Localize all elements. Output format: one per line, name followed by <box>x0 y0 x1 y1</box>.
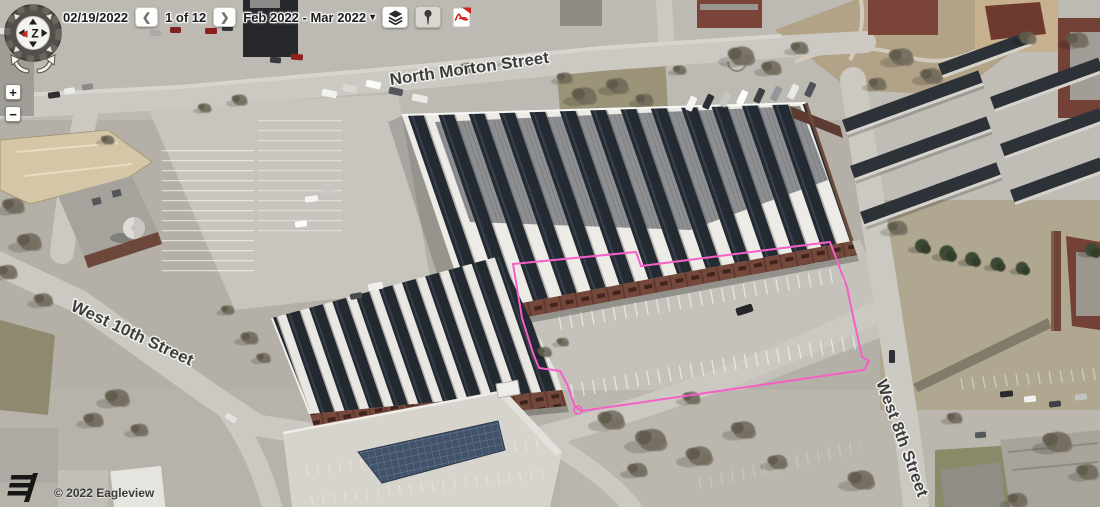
zoom-controls: + − <box>5 84 21 122</box>
zoom-in-button[interactable]: + <box>5 84 21 100</box>
eagleview-logo <box>6 473 44 503</box>
pdf-export-button[interactable] <box>448 6 474 28</box>
page-indicator: 1 of 12 <box>165 10 206 25</box>
chevron-down-icon: ▾ <box>370 12 375 23</box>
chevron-right-icon: ❯ <box>220 11 229 24</box>
layers-icon <box>387 9 404 25</box>
layers-button[interactable] <box>382 6 408 28</box>
pdf-icon <box>452 7 471 28</box>
compass-rose[interactable]: Z <box>2 2 66 78</box>
copyright-text: © 2022 Eagleview <box>54 486 154 503</box>
toolbar: 02/19/2022 ❮ 1 of 12 ❯ Feb 2022 - Mar 20… <box>63 6 474 28</box>
date-range-label: Feb 2022 - Mar 2022 <box>243 10 366 25</box>
next-image-button[interactable]: ❯ <box>213 7 236 27</box>
aerial-map[interactable]: North Morton Street West 10th Street Wes… <box>0 0 1100 507</box>
capture-date: 02/19/2022 <box>63 10 128 25</box>
pin-icon <box>422 9 434 25</box>
zoom-out-button[interactable]: − <box>5 106 21 122</box>
imagery-viewer: North Morton Street West 10th Street Wes… <box>0 0 1100 507</box>
date-range-dropdown[interactable]: Feb 2022 - Mar 2022 ▾ <box>243 10 375 25</box>
chevron-left-icon: ❮ <box>142 11 151 24</box>
pin-button[interactable] <box>415 6 441 28</box>
prev-image-button[interactable]: ❮ <box>135 7 158 27</box>
attribution: © 2022 Eagleview <box>6 473 154 503</box>
compass-z-label: Z <box>31 27 38 41</box>
